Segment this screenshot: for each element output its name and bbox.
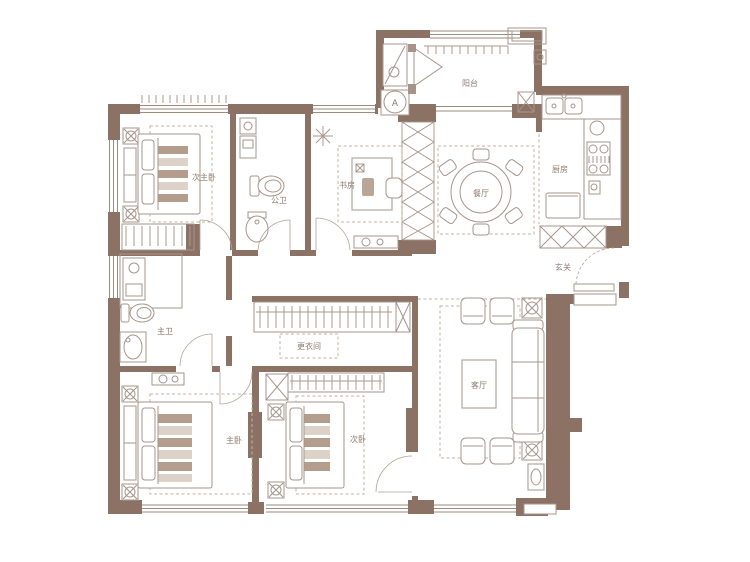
room-study: 书房: [313, 126, 402, 250]
duct-shaft: [402, 122, 434, 240]
room-label-guest-bathroom: 公卫: [271, 196, 287, 205]
door-arc: [180, 334, 212, 366]
pillow: [290, 446, 302, 480]
shaft-hatch: [402, 122, 434, 240]
plant-stand-icon: [528, 464, 544, 490]
bed-icon: [124, 402, 212, 488]
shower-icon: [120, 254, 182, 308]
room-balcony: A 阳台: [381, 28, 546, 115]
wardrobe-hangers-icon: [122, 224, 194, 250]
floor-plan: 次主卧 公卫: [0, 0, 750, 562]
room-label-entry: 玄关: [555, 262, 571, 272]
wardrobe-hangers-icon: [288, 373, 384, 392]
counter: [584, 119, 621, 219]
room-guest-bathroom: 公卫: [240, 118, 290, 250]
room-label-secondary-master-bedroom: 次主卧: [192, 172, 216, 182]
washing-machine-icon: A: [381, 90, 409, 115]
chair-icon: [386, 178, 402, 198]
wardrobe-box-icon: [266, 374, 288, 400]
room-label-secondary-bedroom: 次卧: [350, 434, 366, 444]
door-arc: [316, 218, 350, 250]
cabinet-icon: [354, 236, 398, 248]
drying-rack-icon: [383, 44, 407, 86]
floor-plan-svg: 次主卧 公卫: [0, 0, 750, 562]
room-label-master-bedroom: 主卧: [226, 435, 242, 445]
door-arc: [376, 456, 412, 492]
nightstand-lamp-icon: [268, 404, 284, 420]
appliance-icon: [590, 121, 604, 135]
toilet-icon: [250, 176, 284, 196]
room-label-dressing: 更衣间: [297, 341, 321, 351]
entry-door-arc: [576, 248, 614, 284]
room-dressing: 更衣间: [254, 302, 410, 358]
dresser-icon: [152, 373, 184, 385]
room-kitchen: 厨房: [542, 94, 621, 219]
room-label-study: 书房: [339, 180, 355, 190]
pillow: [142, 408, 155, 442]
stove-icon: [587, 142, 610, 175]
door-leaf: [574, 284, 614, 291]
room-label-dining: 餐厅: [473, 189, 489, 198]
wardrobe-hangers-icon: [254, 302, 396, 332]
water-heater-icon: [240, 118, 256, 158]
room-label-living: 客厅: [471, 380, 487, 390]
washing-machine-label: A: [392, 99, 399, 109]
room-secondary-master-bedroom: 次主卧: [122, 126, 232, 250]
room-secondary-bedroom: 次卧: [266, 373, 412, 498]
sink-icon: [246, 212, 268, 242]
entry-door: [574, 248, 614, 291]
nightstand-lamp-icon: [123, 206, 139, 222]
pillow: [290, 408, 302, 442]
nightstand-lamp-icon: [122, 386, 138, 402]
fridge-icon: [546, 193, 580, 218]
kitchen-sink-icon: [546, 94, 582, 114]
nightstand-lamp-icon: [122, 484, 138, 500]
pillow: [142, 140, 154, 170]
sofa-icon: [512, 320, 544, 442]
room-master-bathroom: 主卫: [120, 254, 212, 366]
shoe-cabinet-icon: [540, 226, 606, 248]
balcony-door-swing: [408, 44, 442, 94]
room-entry: 玄关: [540, 226, 614, 291]
room-living: 客厅: [440, 298, 544, 490]
nightstand-lamp-icon: [123, 128, 139, 144]
door-arc: [220, 372, 252, 404]
bed-icon: [124, 134, 200, 214]
room-label-balcony: 阳台: [462, 78, 478, 88]
sink-icon: [120, 332, 146, 362]
nightstand-lamp-icon: [268, 482, 284, 498]
pillow: [142, 174, 154, 204]
pillow: [142, 446, 155, 480]
room-label-master-bathroom: 主卫: [157, 326, 173, 336]
room-master-bedroom: 主卧: [122, 372, 252, 500]
outlet-icon: [589, 181, 600, 194]
plant-icon: [313, 126, 333, 146]
entry-sill: [574, 294, 616, 305]
door-arc: [200, 220, 232, 250]
bed-icon: [286, 402, 344, 488]
drying-pole-icon: [424, 46, 508, 54]
room-dining: 餐厅: [438, 146, 534, 235]
wardrobe-box-icon: [396, 302, 410, 332]
room-label-kitchen: 厨房: [552, 164, 568, 174]
toilet-icon: [121, 304, 154, 322]
